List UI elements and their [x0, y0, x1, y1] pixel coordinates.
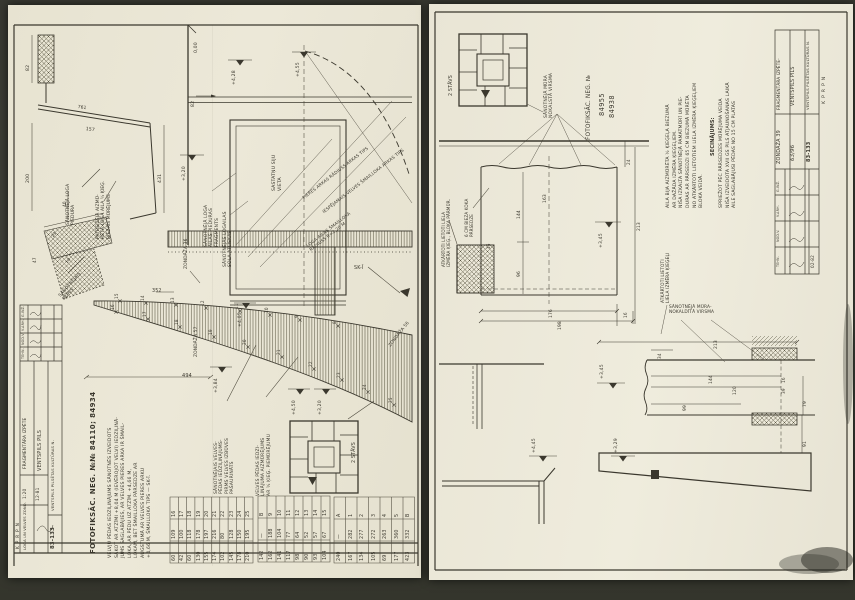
table-cell: 60	[172, 554, 178, 560]
table-cell: 21	[213, 510, 219, 516]
dimension-label: 213	[637, 222, 642, 231]
keyplan-label: 2 STĀVS	[352, 442, 358, 463]
elevation-label: +3,45	[600, 364, 606, 379]
titleblock-doc-no: 83-133	[50, 527, 57, 549]
drawing-label: SĀNOTNĒJĀ MŪRA- NOKALDĪTĀ VIRSMA	[669, 305, 714, 316]
dimension-label: 91	[803, 441, 808, 447]
table-cell: 105	[372, 551, 378, 561]
table-cell: 22	[221, 510, 227, 516]
titleblock-org-abbr: KPRPN	[15, 520, 20, 549]
table-cell: 104	[323, 550, 329, 560]
table-cell: 277	[360, 529, 366, 539]
drawing-label: SASTATŅU SIJU VIETA	[272, 155, 283, 191]
dimension-label: 157	[85, 127, 95, 134]
titleblock-role: NOD.V.	[21, 333, 25, 345]
elevation-label: 0,00	[194, 42, 200, 53]
elevation-label: +4,45	[532, 438, 538, 453]
table-cell: 3	[372, 513, 378, 516]
table-cell: 2	[360, 513, 366, 516]
drawing-label: ATKĀRTOTI LIETOTI LIELA IZMĒRA ĶIEĢEĻI	[661, 253, 672, 303]
table-cell: 423	[406, 551, 412, 561]
survey-point-number: 16	[110, 304, 115, 310]
titleblock-role: V.ARH.	[776, 205, 780, 217]
table-cell: A	[337, 513, 343, 516]
drawing-label: SĀNOTNĒJAIS VELVES- PĒDAS IEDZIĻINĀJUMS-…	[214, 438, 236, 494]
table-cell: 9	[269, 512, 275, 515]
survey-point-number: 11	[234, 303, 239, 309]
table-cell: 19	[197, 510, 203, 516]
table-cell: 14	[314, 509, 320, 515]
pier-hatch	[315, 247, 335, 315]
photo-smudge	[779, 554, 839, 574]
table-cell: 64	[296, 531, 302, 537]
dimension-label: 120	[733, 386, 738, 395]
dimension-label: 144	[709, 375, 714, 384]
table-cell: 272	[372, 529, 378, 539]
table-cell: 197	[205, 529, 211, 539]
table-cell: 13	[305, 509, 311, 515]
table-cell: 332	[406, 529, 412, 539]
table-cell: 240	[337, 551, 343, 561]
titleblock-date: 02-82	[810, 255, 815, 268]
key-plan	[459, 34, 527, 106]
table-cell: 1	[349, 513, 355, 516]
drawing-label: SĀNOTNĒJĀ LOGA PIEDURA	[66, 184, 77, 225]
table-cell: 93	[314, 553, 320, 559]
titleblock-extra-no: 63/96	[790, 145, 797, 161]
table-cell: 18	[188, 510, 194, 516]
keyplan-label: 2 STĀVS	[449, 75, 455, 96]
table-cell: 167	[349, 551, 355, 561]
left-sheet: 0,0082+4,28+4,55+3,20+4,05+3,84+4,50+3,2…	[8, 5, 421, 578]
drawing-label: SĀNOTNĒJĀ MŪRA NOKALSTĀ VIRSMA	[544, 73, 555, 118]
elevation-label: +3,20	[182, 166, 188, 181]
titleblock-sheet-title: ZONDĀŽA 39	[776, 130, 782, 164]
survey-point-number: 14	[140, 295, 145, 301]
dimension-label: 352	[152, 289, 162, 295]
titleblock-role: G.INŽ.	[776, 181, 780, 192]
elevation-label: +4,55	[296, 62, 302, 77]
right-sheet-linework	[429, 4, 853, 580]
dimension-label: 24	[626, 159, 631, 165]
table-cell: 177	[395, 551, 401, 561]
photo-reference: FOTOFIKSĀC. NEG. №№ 84110; 84934	[89, 392, 98, 554]
table-cell: 80	[221, 532, 227, 538]
dimension-label: 494	[182, 373, 192, 379]
table-cell: 98	[296, 553, 302, 559]
table-cell: 130	[197, 551, 203, 561]
drawing-label: VELVES PĒDAS IEDZI- ĻINĀJUMA AIZMŪRĒJUMS…	[256, 434, 272, 496]
table-cell: 155	[205, 551, 211, 561]
photo-smudge	[843, 304, 853, 424]
dimension-label: 82	[26, 65, 32, 71]
table-cell: 150	[238, 529, 244, 539]
elevation-label: +3,45	[599, 233, 605, 248]
photo-negative-number: 84955	[598, 93, 606, 116]
titleblock-role: TEHN.	[776, 256, 780, 267]
brick-block-hatch	[457, 245, 494, 293]
titleblock-stage: FRAGMENTĀRA IZPĒTE-	[776, 58, 781, 110]
elevation-label: +4,05	[238, 312, 244, 327]
table-cell: 104	[278, 528, 284, 538]
table-cell: 142	[260, 550, 266, 560]
titleblock-project: VENTSPILS PILS	[37, 430, 43, 471]
conclusion-heading: SECINĀJUMS:	[710, 117, 716, 156]
titleblock-org: VENTSPILS PILSĒTAS KULTŪRAS N.	[806, 41, 811, 110]
plan-notch	[651, 470, 659, 479]
flag-and-leader-lines	[449, 188, 621, 244]
light-hatch	[752, 336, 797, 346]
drawing-label: ATKĀRTOTI LIETOTI LIELA IZMĒRA ĶIEĢ., BL…	[441, 199, 451, 267]
table-cell: 10	[278, 509, 284, 515]
table-cell: 4	[383, 513, 389, 516]
elevation-label: +3,29	[614, 438, 620, 453]
dimension-label: 47	[32, 257, 37, 263]
dimension-label: 15	[486, 243, 491, 249]
table-cell: 174	[213, 551, 219, 561]
table-cell: 25	[246, 510, 252, 516]
fold-crease	[212, 25, 213, 566]
notes-paragraph: AILA BIJA AIZMŪRĒTA ½ ĶIEĢEĻA BIEZUMĀ AR…	[666, 83, 706, 208]
survey-point-number: 25	[388, 397, 393, 403]
survey-point-number: 12	[200, 300, 205, 306]
table-cell: 188	[269, 528, 275, 538]
drawing-label: SĀNOTNĒJĀ LOGA AILAS PIEDURAS FRAGMENTS	[204, 205, 220, 247]
survey-point-number: 18	[174, 319, 179, 325]
dimension-label: 96	[517, 271, 522, 277]
table-cell: 128	[230, 529, 236, 539]
table-cell: 141	[278, 550, 284, 560]
table-cell: 77	[287, 531, 293, 537]
table-cell: 90	[305, 553, 311, 559]
signature	[789, 185, 804, 267]
survey-point-number: 15	[114, 293, 119, 299]
wall-hatch	[38, 35, 54, 83]
titleblock-role: NOD.V.	[776, 230, 780, 242]
table-cell: 195	[246, 529, 252, 539]
table-cell: 162	[269, 550, 275, 560]
key-plan	[290, 421, 358, 493]
elevation-label: +4,50	[292, 400, 298, 415]
drawing-label: 6 CM BIEZA KOKA PĀRSEDZE	[464, 199, 474, 237]
table-cell: 11	[287, 509, 293, 515]
survey-point-number: 22	[308, 361, 313, 367]
titleblock-org: VENTSPILS PILSĒTAS KULTŪRAS N.	[51, 440, 56, 511]
titleblock-doc-no: 83-133	[806, 142, 812, 162]
table-cell: 210	[246, 551, 252, 561]
survey-point-number: 21	[276, 349, 281, 355]
dimension-label: 16	[623, 312, 628, 318]
location-marker	[481, 90, 490, 98]
survey-point-number: 10	[264, 307, 269, 313]
titleblock-project: VENTSPILS PILS	[791, 66, 797, 106]
table-cell: 5	[395, 513, 401, 516]
table-cell: 24	[238, 510, 244, 516]
photo-reference: FOTOFIKSĀC. NEG. №	[586, 75, 593, 140]
elevation-label: +4,28	[232, 70, 238, 85]
table-cell: 12	[296, 509, 302, 515]
table-cell: 263	[383, 529, 389, 539]
table-cell: 57	[314, 531, 320, 537]
survey-point-number: 13	[170, 297, 175, 303]
table-cell: 67	[323, 531, 329, 537]
dimension-label: 16	[781, 377, 786, 383]
table-cell: 100	[180, 529, 186, 539]
survey-point-number: 24	[362, 384, 367, 390]
dimension-label: 79	[803, 401, 808, 407]
elevation-label: +3,84	[214, 378, 220, 393]
dimension-label: 761	[77, 105, 87, 112]
table-cell: 134	[360, 551, 366, 561]
vault-springing-hatch	[94, 301, 412, 422]
dimension-label: 99	[683, 405, 688, 411]
table-cell: B	[260, 512, 266, 515]
table-cell: 109	[172, 529, 178, 539]
table-cell: 102	[221, 551, 227, 561]
table-cell: 60	[188, 554, 194, 560]
survey-point-number: 23	[336, 372, 341, 378]
titleblock-scale: 1:20	[23, 489, 28, 499]
table-cell: —	[337, 534, 343, 539]
photo-negative-number: 84938	[608, 95, 616, 118]
table-cell: 117	[287, 550, 293, 560]
table-cell: 216	[213, 529, 219, 539]
drawing-label: SĀNOTNĒJĀS LOGAILAS SOLA ATLIEKAS	[223, 211, 234, 267]
table-cell: 178	[197, 529, 203, 539]
dimension-label: 431	[158, 174, 164, 183]
dimension-label: 213	[714, 340, 719, 349]
table-cell: —	[260, 533, 266, 538]
dimension-label: 200	[26, 174, 32, 183]
table-cell: 17	[180, 510, 186, 516]
survey-point-number: 20	[242, 339, 247, 345]
titleblock-role: G.INŽ.	[21, 306, 25, 317]
table-cell: 145	[230, 551, 236, 561]
table-cell: 178	[238, 551, 244, 561]
titleblock-date: 12-81	[36, 487, 41, 501]
table-cell: 23	[230, 510, 236, 516]
brick-hatch-blocks	[752, 348, 797, 425]
titleblock-org-abbr: KPRPN	[822, 74, 828, 104]
dimension-label: 176	[549, 309, 554, 318]
table-cell: 118	[188, 529, 194, 539]
survey-point-number: 19	[208, 329, 213, 335]
notes-paragraph: VELVJU PĒDAS IEDZIĻINĀJUMS SĀNOTNĒS IZVE…	[108, 417, 154, 558]
table-cell: 16	[172, 510, 178, 516]
elevation-label: +3,20	[318, 400, 324, 415]
table-cell: 360	[395, 529, 401, 539]
table-cell: 69	[383, 554, 389, 560]
survey-point-number: 17	[142, 311, 147, 317]
drawing-label: SK-Ī	[354, 266, 363, 272]
table-cell: B	[406, 513, 412, 516]
dimension-label: 198	[558, 321, 563, 330]
drawing-label: PATREIZĒJĀ AIZMŪ- RĒTĀ LOGA AILA ½ ĶIEĢ.…	[96, 181, 112, 239]
table-cell: 42	[180, 554, 186, 560]
scanned-drawing-photo: 0,0082+4,28+4,55+3,20+4,05+3,84+4,50+3,2…	[0, 0, 855, 600]
table-cell: 52	[305, 531, 311, 537]
dimension-label: 34	[657, 353, 662, 359]
drawing-label: ZONDĀŽA 36	[184, 238, 189, 269]
table-cell: 20	[205, 510, 211, 516]
survey-point-number: 9	[294, 315, 299, 318]
table-cell: 15	[323, 509, 329, 515]
titleblock-role: TEHN.	[21, 348, 25, 359]
titleblock-sheet-title: LOGA UN VELVES ZOND.	[23, 502, 28, 550]
elevation-flag	[605, 222, 613, 228]
dimension-label: 39	[781, 388, 786, 394]
dimension-label: 144	[517, 210, 522, 219]
table-cell: 282	[349, 529, 355, 539]
dimension-label: 82	[191, 101, 197, 107]
niche-elevation	[479, 141, 635, 326]
conclusion-paragraph: SPRIEŽOT PĒC PĀRSEDZES MŪRĒJUMA VEIDA NI…	[719, 82, 739, 208]
titleblock-stage: FRAGMENTĀRA IZPĒTE	[23, 418, 28, 469]
right-sheet: 2 STĀVSSĀNOTNĒJĀ MŪRA NOKALSTĀ VIRSMAFOT…	[429, 4, 853, 580]
survey-point-number: 8	[332, 321, 337, 324]
drawing-label: ZONDĀŽA 57	[194, 326, 199, 357]
titleblock-role: V.ARH.	[21, 319, 25, 331]
dimension-label: 163	[543, 194, 548, 203]
